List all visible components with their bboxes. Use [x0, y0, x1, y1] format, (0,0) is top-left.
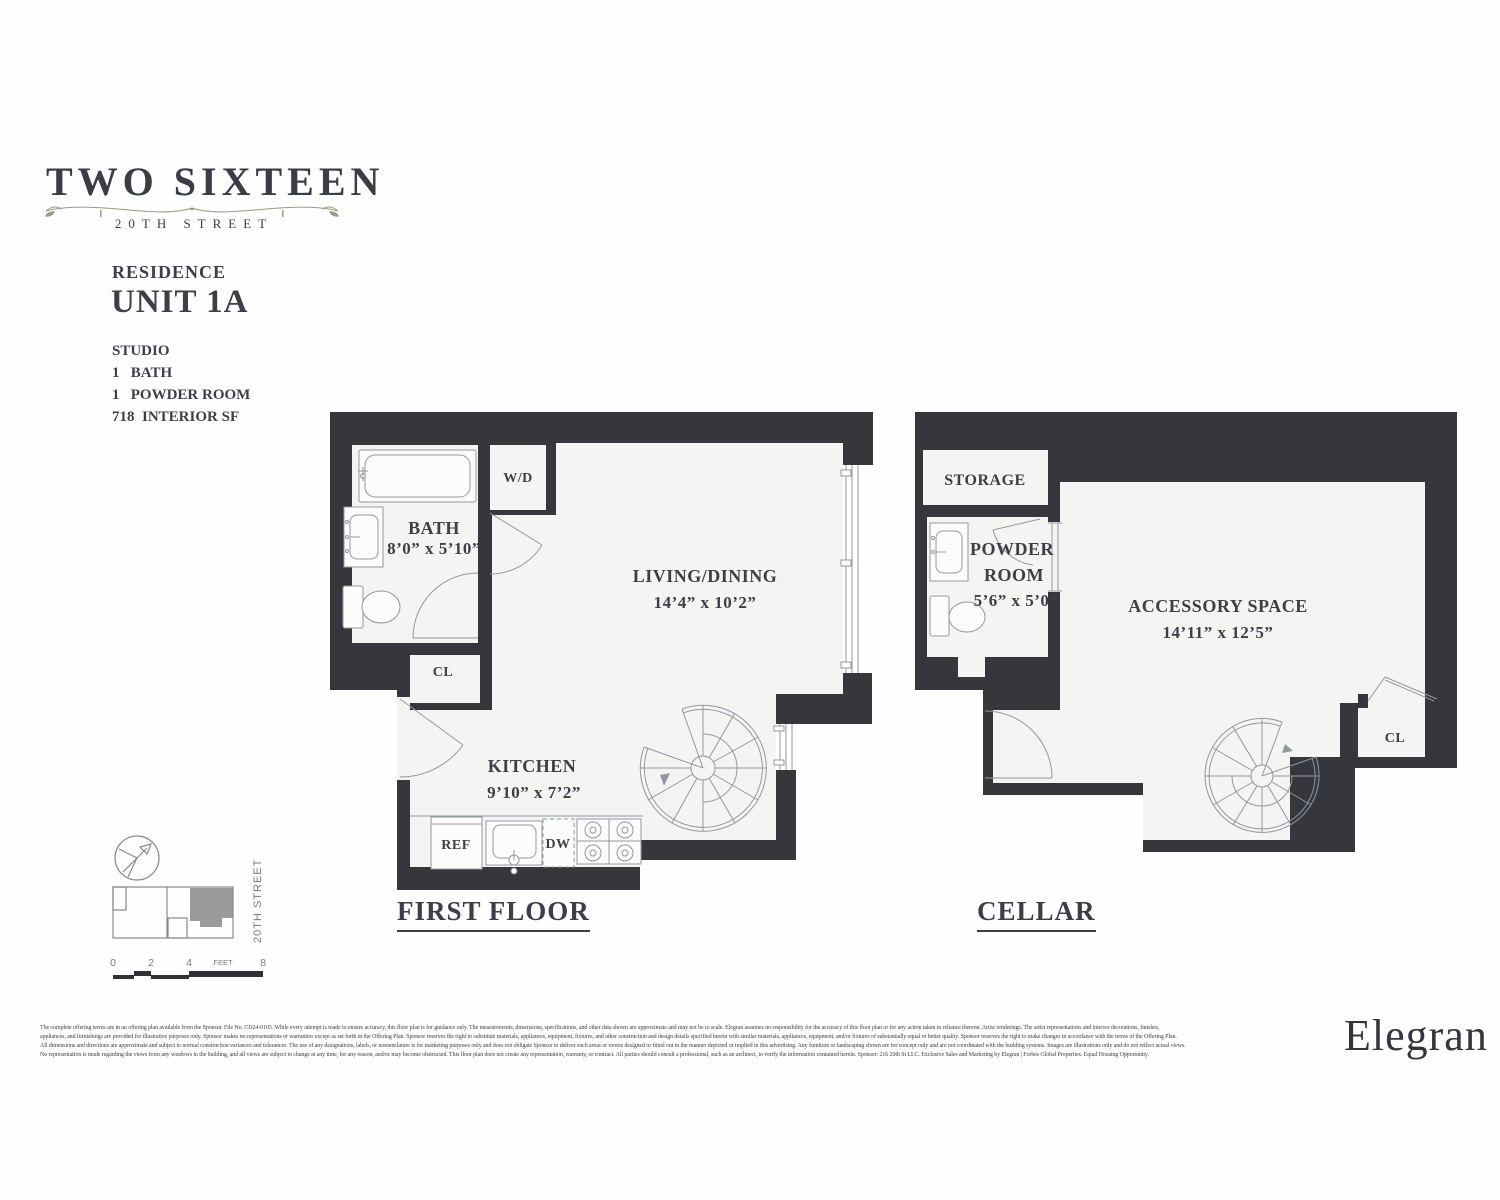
residence-heading: RESIDENCE — [112, 262, 226, 283]
stove — [577, 819, 641, 864]
disclaimer-line-2: appliances, and furnishings are provided… — [40, 1033, 1250, 1042]
powder-room-dimensions: 5’6” x 5’0” — [974, 591, 1059, 610]
feature-studio: STUDIO — [112, 340, 250, 362]
disclaimer-line-1: The complete offering terms are in an of… — [40, 1024, 1250, 1033]
feature-interior-sf: 718 INTERIOR SF — [112, 406, 250, 428]
scale-unit-label: FEET — [213, 958, 233, 967]
unit-location-highlight — [190, 888, 233, 927]
scale-bar: 0 2 4 FEET 8 — [110, 957, 266, 979]
powder-room-label-line1: POWDER — [970, 539, 1055, 559]
north-arrow-compass — [115, 836, 159, 880]
feature-bath: 1 BATH — [112, 362, 250, 384]
scale-tick-8: 8 — [260, 957, 266, 969]
bath-dimensions: 8’0” x 5’10” — [387, 539, 481, 558]
brand-subtitle: 20TH STREET — [48, 216, 340, 232]
building-key-plan — [113, 887, 233, 938]
scale-tick-2: 2 — [148, 957, 154, 969]
cellar-heading: CELLAR — [977, 896, 1096, 932]
key-plan: 20TH STREET 0 2 4 FEET 8 — [95, 825, 285, 985]
unit-feature-list: STUDIO 1 BATH 1 POWDER ROOM 718 INTERIOR… — [112, 340, 250, 428]
kitchen-label: KITCHEN — [488, 756, 577, 776]
powder-room-notch — [958, 657, 985, 677]
elegran-logo: Elegran — [1344, 1010, 1488, 1061]
accessory-space-label: ACCESSORY SPACE — [1128, 596, 1307, 616]
washer-dryer-label: W/D — [503, 471, 533, 486]
floor-plan-sheet: TWO SIXTEEN 20TH STREET RESIDENCE UNIT 1… — [0, 0, 1500, 1200]
entry-opening — [397, 697, 410, 780]
kitchen-dimensions: 9’10” x 7’2” — [487, 783, 581, 802]
street-label: 20TH STREET — [252, 859, 264, 943]
dishwasher-label: DW — [545, 837, 570, 852]
legal-disclaimer: The complete offering terms are in an of… — [40, 1024, 1250, 1060]
feature-powder-room: 1 POWDER ROOM — [112, 384, 250, 406]
first-floor-heading: FIRST FLOOR — [397, 896, 590, 932]
unit-title: UNIT 1A — [111, 284, 249, 321]
powder-room-label-line2: ROOM — [984, 565, 1044, 585]
powder-sink — [930, 523, 968, 581]
cellar-closet-label: CL — [1385, 731, 1405, 746]
living-window — [841, 465, 861, 673]
bathtub — [358, 450, 476, 502]
storage-label: STORAGE — [944, 472, 1025, 489]
cellar-plan: STORAGE POWDER ROOM 5’6” x 5’0” ACCESSOR… — [915, 410, 1460, 895]
scale-tick-0: 0 — [110, 957, 116, 969]
living-dining-label: LIVING/DINING — [633, 566, 778, 586]
scale-tick-4: 4 — [186, 957, 192, 969]
bath-sink — [344, 507, 383, 567]
accessory-space-dimensions: 14’11” x 12’5” — [1163, 623, 1274, 642]
bath-label: BATH — [408, 518, 460, 538]
refrigerator-label: REF — [441, 838, 471, 853]
living-dining-dimensions: 14’4” x 10’2” — [654, 593, 757, 612]
cellar-closet-door-jamb — [1358, 694, 1368, 708]
first-floor-closet-label: CL — [433, 665, 453, 680]
disclaimer-line-4: No representation is made regarding the … — [40, 1051, 1250, 1060]
stair-window — [774, 724, 796, 770]
cellar-closet-wall — [1340, 703, 1358, 757]
first-floor-plan: BATH 8’0” x 5’10” W/D LIVING/DINING 14’4… — [330, 410, 875, 895]
disclaimer-line-3: All dimensions and directions are approx… — [40, 1042, 1250, 1051]
